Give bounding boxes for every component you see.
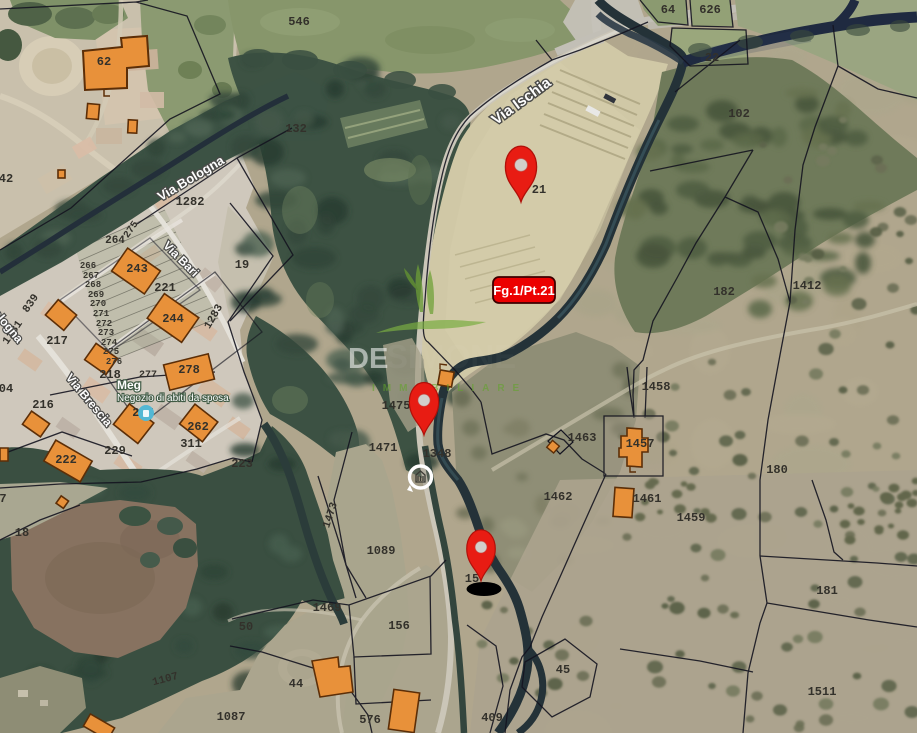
svg-text:19: 19 — [235, 258, 249, 272]
svg-text:50: 50 — [239, 620, 253, 634]
svg-text:156: 156 — [388, 619, 410, 633]
svg-text:45: 45 — [556, 663, 570, 677]
svg-text:229: 229 — [104, 444, 126, 458]
svg-text:Negozio di abiti da sposa: Negozio di abiti da sposa — [117, 393, 229, 404]
svg-text:132: 132 — [285, 122, 307, 136]
svg-text:22: 22 — [705, 51, 719, 65]
svg-text:216: 216 — [32, 398, 54, 412]
svg-text:44: 44 — [289, 677, 303, 691]
svg-text:266: 266 — [80, 261, 96, 271]
svg-text:04: 04 — [0, 382, 13, 396]
svg-text:276: 276 — [106, 357, 122, 367]
svg-text:546: 546 — [288, 15, 310, 29]
svg-text:7: 7 — [0, 492, 7, 506]
svg-text:1089: 1089 — [367, 544, 396, 558]
svg-text:102: 102 — [728, 107, 750, 121]
svg-text:64: 64 — [661, 3, 675, 17]
svg-text:1458: 1458 — [642, 380, 671, 394]
svg-text:262: 262 — [187, 420, 209, 434]
svg-text:409: 409 — [481, 711, 503, 725]
svg-text:1282: 1282 — [176, 195, 205, 209]
svg-text:62: 62 — [97, 55, 111, 69]
svg-text:18: 18 — [15, 526, 29, 540]
svg-text:271: 271 — [93, 309, 110, 319]
svg-text:182: 182 — [713, 285, 735, 299]
svg-text:SIMONE: SIMONE — [386, 338, 516, 375]
svg-text:180: 180 — [766, 463, 788, 477]
svg-text:1087: 1087 — [217, 710, 246, 724]
svg-text:1459: 1459 — [677, 511, 706, 525]
svg-text:1462: 1462 — [544, 490, 573, 504]
svg-text:Fg.1/Pt.21: Fg.1/Pt.21 — [493, 283, 554, 298]
svg-text:278: 278 — [178, 363, 200, 377]
svg-text:1412: 1412 — [793, 279, 822, 293]
svg-text:243: 243 — [126, 262, 148, 276]
svg-text:IMMOBILIARE: IMMOBILIARE — [372, 383, 527, 394]
svg-text:1348: 1348 — [423, 447, 452, 461]
svg-text:DE: DE — [348, 343, 388, 375]
svg-text:217: 217 — [46, 334, 68, 348]
svg-text:576: 576 — [359, 713, 381, 727]
svg-text:270: 270 — [90, 299, 106, 309]
svg-text:Meg: Meg — [117, 378, 141, 392]
svg-text:221: 221 — [154, 281, 176, 295]
svg-text:222: 222 — [55, 453, 77, 467]
svg-text:1511: 1511 — [808, 685, 837, 699]
svg-text:264: 264 — [105, 235, 125, 247]
svg-text:277: 277 — [139, 370, 157, 381]
svg-text:1471: 1471 — [369, 441, 398, 455]
svg-text:181: 181 — [816, 584, 838, 598]
svg-text:1469: 1469 — [313, 601, 342, 615]
svg-text:21: 21 — [532, 183, 546, 197]
svg-text:626: 626 — [699, 3, 721, 17]
svg-text:223: 223 — [231, 457, 253, 471]
svg-text:1475: 1475 — [382, 399, 411, 413]
svg-text:1457: 1457 — [626, 437, 655, 451]
svg-text:273: 273 — [98, 328, 114, 338]
svg-text:244: 244 — [162, 312, 184, 326]
svg-text:42: 42 — [0, 172, 13, 186]
svg-text:1463: 1463 — [568, 431, 597, 445]
svg-text:1461: 1461 — [633, 492, 662, 506]
svg-text:275: 275 — [103, 347, 119, 357]
svg-text:311: 311 — [180, 437, 202, 451]
svg-text:268: 268 — [85, 280, 101, 290]
